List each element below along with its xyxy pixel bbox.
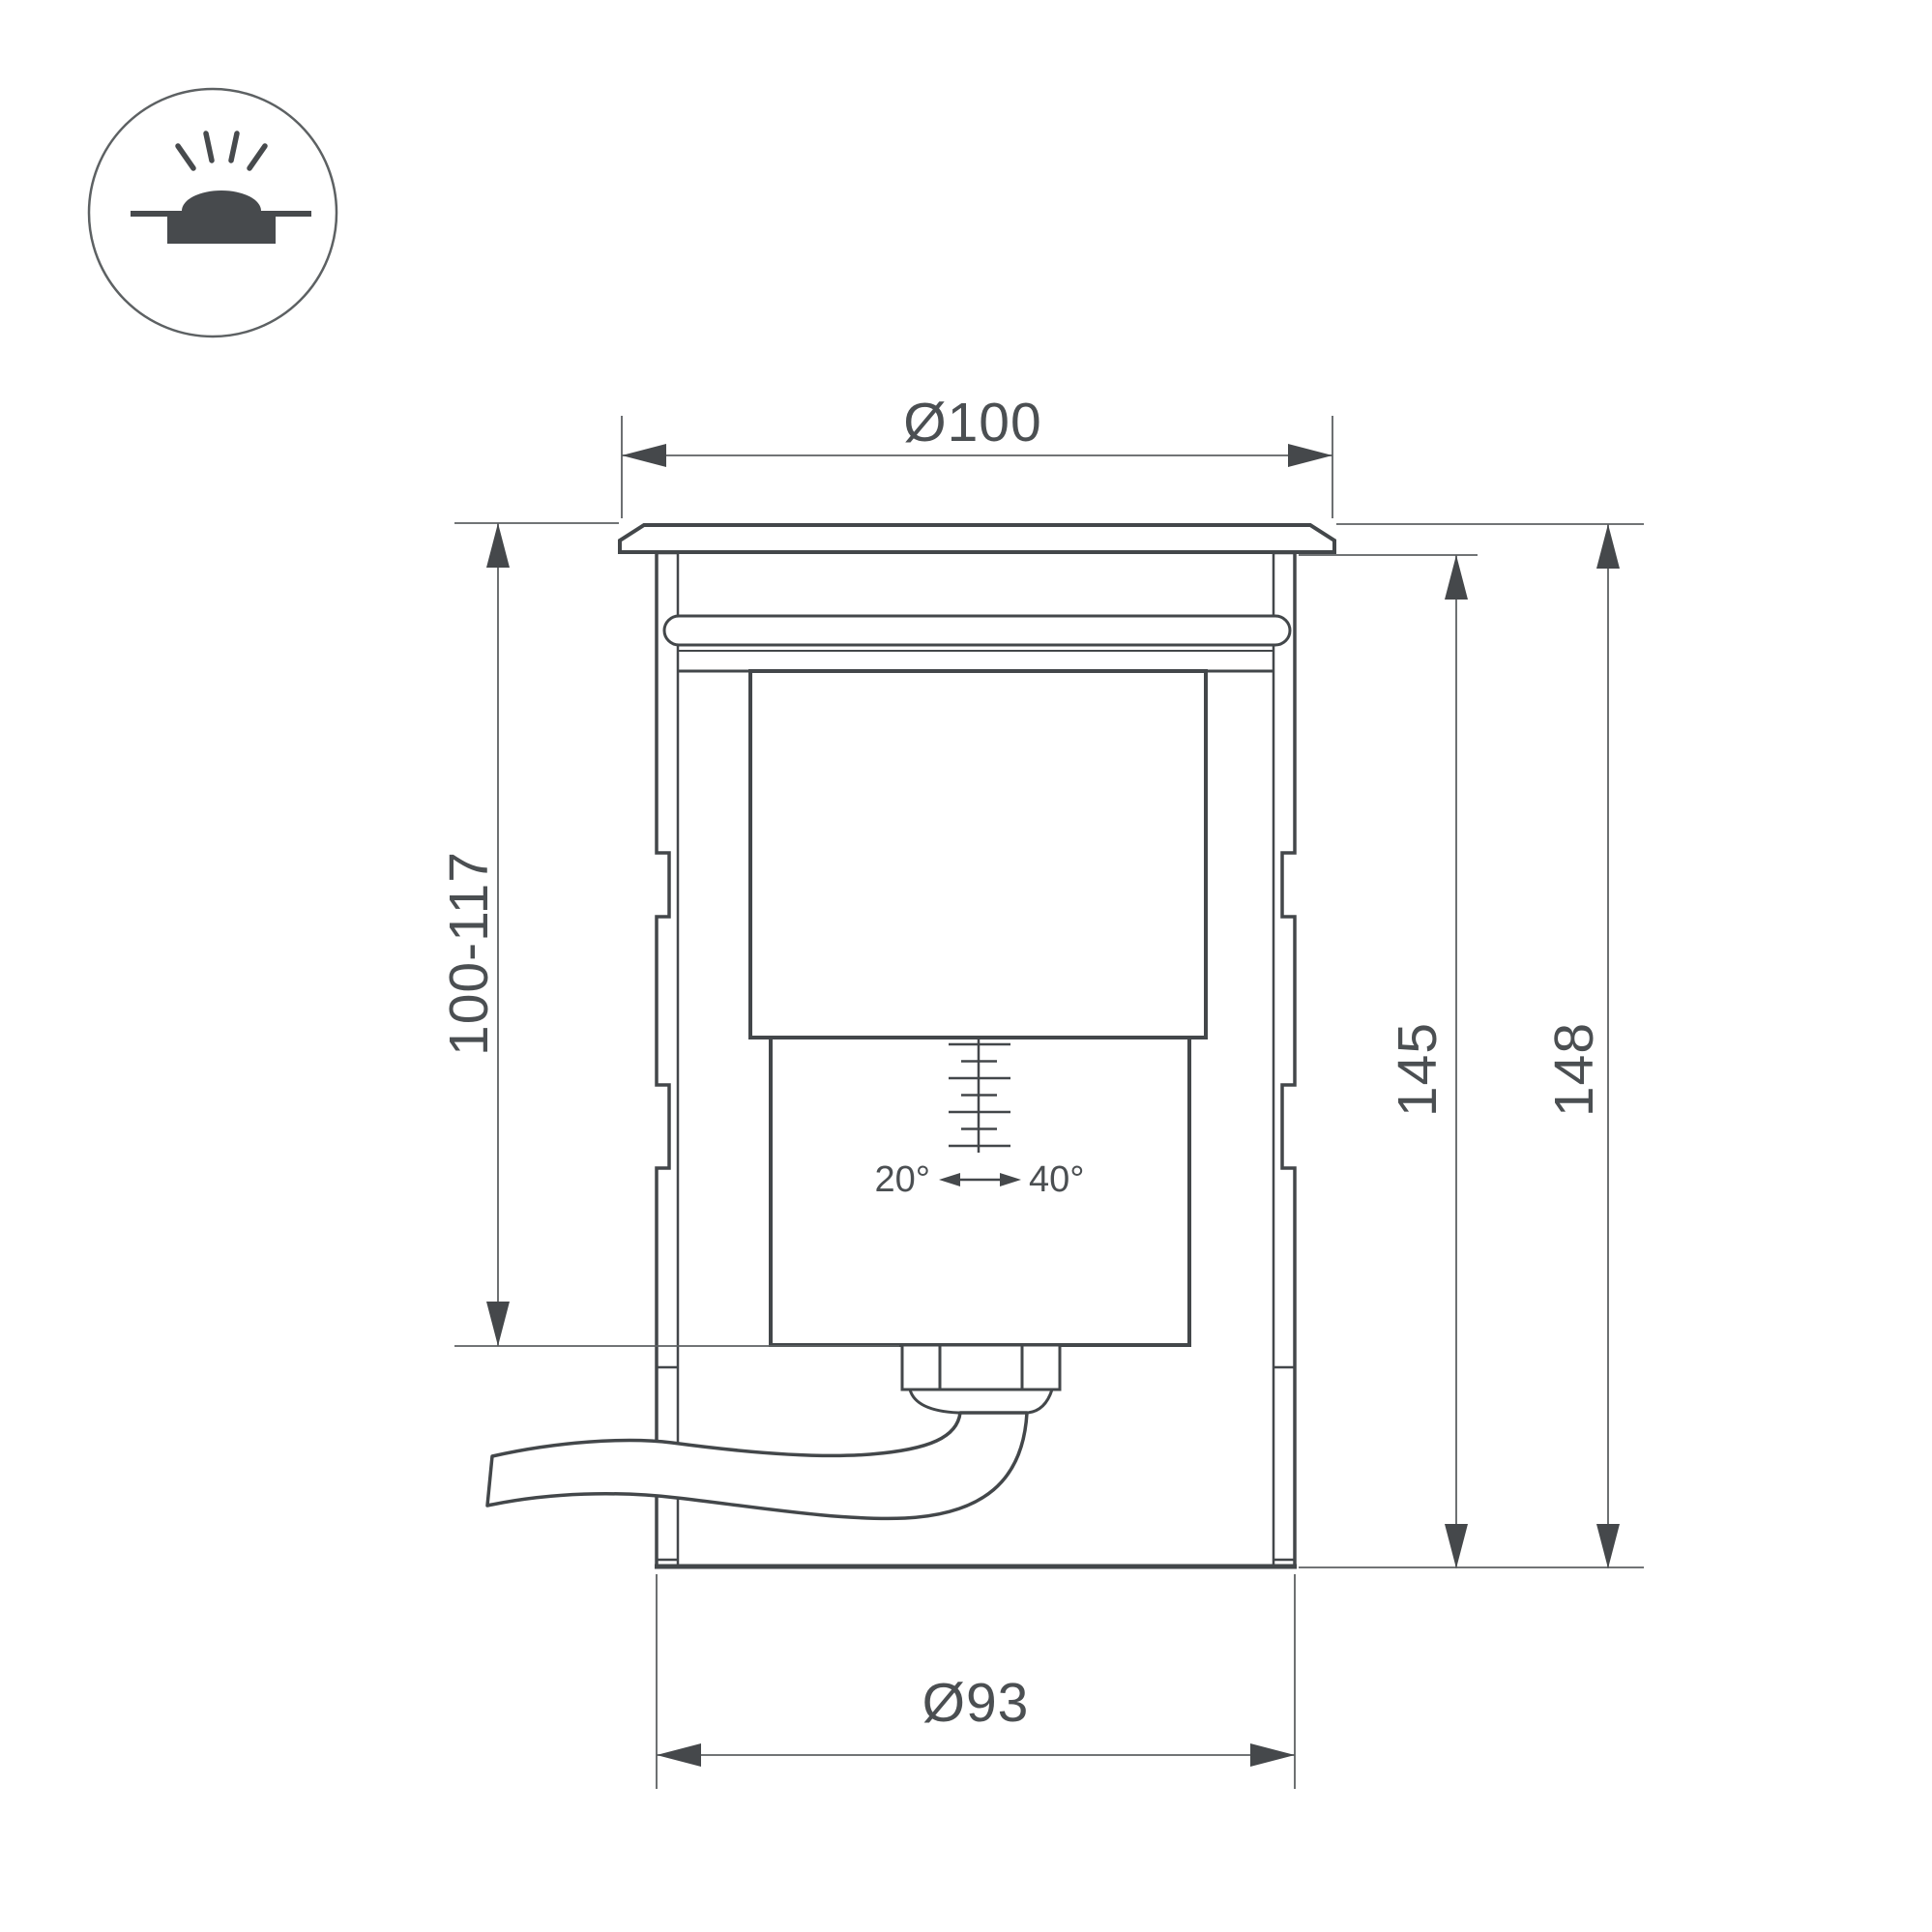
recessed-body-icon bbox=[167, 217, 276, 244]
top-flange bbox=[620, 525, 1334, 552]
housing-right-wall bbox=[1282, 551, 1295, 1566]
cable-gland bbox=[902, 1345, 1060, 1413]
dim-arrow-icon bbox=[1445, 1524, 1468, 1568]
dim-arrow-icon bbox=[486, 523, 510, 568]
dim-arrow-icon bbox=[1250, 1743, 1295, 1767]
total-height-label: 148 bbox=[1543, 1022, 1605, 1117]
lamp-module bbox=[750, 671, 1206, 1038]
tilt-max-label: 40° bbox=[1029, 1159, 1084, 1200]
fixture-cross-section: 20° 40° bbox=[487, 525, 1334, 1566]
inner-height-label: 145 bbox=[1387, 1022, 1449, 1117]
dim-inner-height: 145 bbox=[1299, 555, 1478, 1568]
body-diameter-label: Ø93 bbox=[922, 1672, 1030, 1734]
dim-arrow-icon bbox=[622, 444, 666, 467]
dim-arrow-icon bbox=[1288, 444, 1332, 467]
dim-top-diameter: Ø100 bbox=[622, 392, 1332, 518]
embed-depth-label: 100-117 bbox=[438, 851, 500, 1056]
ground-line-icon bbox=[131, 211, 311, 217]
recessed-ground-light-icon bbox=[89, 89, 337, 337]
gasket-ring bbox=[664, 616, 1290, 645]
dim-body-diameter: Ø93 bbox=[657, 1574, 1295, 1789]
top-diameter-label: Ø100 bbox=[903, 392, 1041, 454]
sun-rays-icon bbox=[178, 133, 265, 168]
sun-dome-icon bbox=[182, 190, 261, 211]
dim-arrow-icon bbox=[1445, 555, 1468, 600]
driver-box bbox=[771, 1038, 1189, 1345]
dim-arrow-icon bbox=[657, 1743, 701, 1767]
dim-arrow-icon bbox=[1596, 524, 1620, 569]
supply-cable bbox=[487, 1413, 1027, 1518]
dimension-drawing-page: 20° 40° Ø100 100-117 bbox=[0, 0, 1932, 1932]
luminaire-dimension-drawing: 20° 40° Ø100 100-117 bbox=[0, 0, 1932, 1932]
tilt-min-label: 20° bbox=[875, 1159, 930, 1200]
dim-total-height: 148 bbox=[1299, 524, 1644, 1568]
housing-left-wall bbox=[657, 551, 669, 1566]
dim-arrow-icon bbox=[486, 1302, 510, 1346]
gland-dome bbox=[910, 1390, 1052, 1413]
dim-arrow-icon bbox=[1596, 1524, 1620, 1568]
